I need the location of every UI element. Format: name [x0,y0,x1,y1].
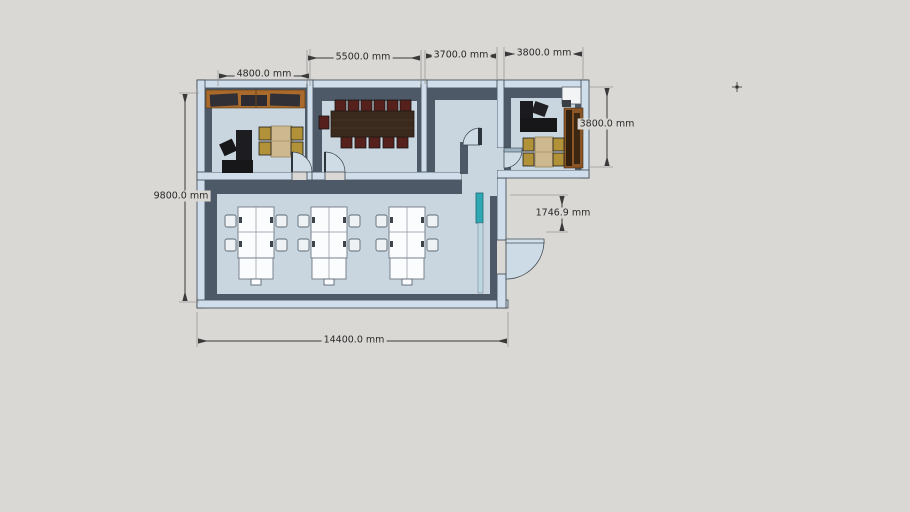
dim-label-5500: 5500.0 mm [334,52,393,63]
wood-counter [206,90,305,108]
dim-label-3800-right: 3800.0 mm [578,119,637,130]
dim-label-3700: 3700.0 mm [432,50,491,61]
model-viewport[interactable]: 4800.0 mm 5500.0 mm 3700.0 mm 3800.0 mm … [0,0,910,512]
white-cabinet [562,87,581,107]
wood-bookshelf [564,108,583,168]
dim-label-3800-top: 3800.0 mm [515,48,574,59]
dim-label-4800: 4800.0 mm [235,69,294,80]
crosshair-icon [732,82,742,92]
dim-label-9800: 9800.0 mm [152,191,211,202]
dim-label-1746: 1746.9 mm [534,208,593,219]
dim-label-14400: 14400.0 mm [322,335,387,346]
entry-stub-wall [460,142,468,174]
floor-plan-drawing [0,0,910,512]
door-exterior [506,239,544,279]
